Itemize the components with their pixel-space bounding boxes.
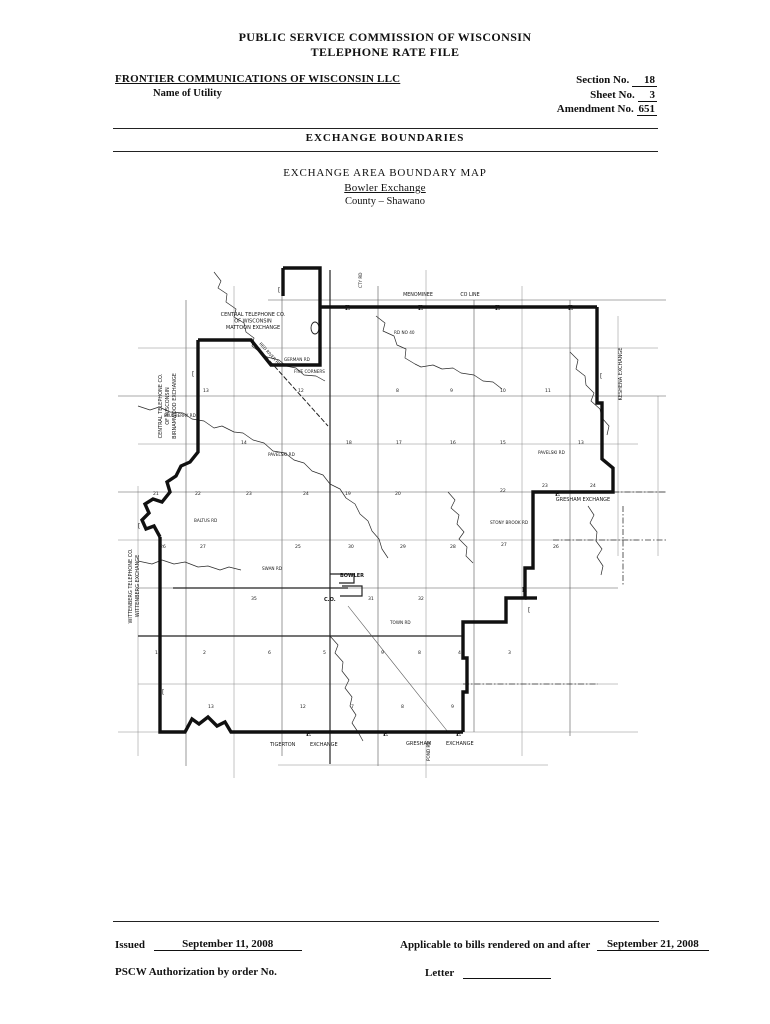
section-no-row: Section No. 18 — [557, 73, 657, 88]
section-number: 23 — [542, 483, 548, 489]
amendment-no-row: Amendment No. 651 — [557, 102, 657, 117]
bowler-town-label: BOWLER — [340, 573, 364, 579]
divider-top — [113, 128, 658, 129]
boundary-marker-e: E — [383, 729, 388, 738]
section-number: 16 — [450, 440, 456, 446]
road-label: FIVE CORNERS — [294, 369, 325, 374]
section-number: 20 — [395, 491, 401, 497]
section-number: 17 — [396, 440, 402, 446]
sheet-value: 3 — [638, 89, 658, 102]
document-page: PUBLIC SERVICE COMMISSION OF WISCONSIN T… — [0, 0, 770, 1024]
section-number: 3 — [508, 650, 511, 656]
section-number: 9 — [450, 388, 453, 394]
section-number: 24 — [303, 491, 309, 497]
section-number: 11 — [545, 388, 551, 394]
section-number: 31 — [368, 596, 374, 602]
applicable-row: Applicable to bills rendered on and afte… — [400, 938, 709, 951]
letter-label: Letter — [425, 967, 454, 979]
section-number: 15 — [500, 440, 506, 446]
section-number: 21 — [153, 491, 159, 497]
section-number: 9 — [381, 650, 384, 656]
section-number: 14 — [241, 440, 247, 446]
section-label: Section No. — [576, 74, 629, 86]
issued-date: September 11, 2008 — [154, 938, 302, 951]
section-value: 18 — [632, 74, 657, 87]
gresham-exchange-bottom-label: EXCHANGE — [446, 741, 474, 747]
keshena-exchange-label: KESHENA EXCHANGE — [618, 348, 624, 401]
pond — [311, 322, 319, 334]
authorization-row: PSCW Authorization by order No. — [115, 966, 277, 978]
section-number: 2 — [203, 650, 206, 656]
boundary-marker-e: E — [418, 303, 423, 312]
boundary-bracket: [ — [138, 523, 140, 530]
section-grid — [118, 270, 666, 778]
amendment-value: 651 — [637, 103, 658, 116]
section-number: 10 — [500, 388, 506, 394]
divider-bottom — [113, 151, 658, 152]
section-number: 23 — [246, 491, 252, 497]
boundary-marker-e: E — [306, 729, 311, 738]
footer-rule — [113, 921, 659, 922]
boundary-bracket: [ — [600, 373, 602, 380]
road-label: SWAN RD — [262, 566, 282, 571]
road-label: POND RD — [426, 741, 431, 761]
road-label: PAVELSKI RD — [268, 452, 295, 457]
section-number: 26 — [160, 544, 166, 550]
section-number: 13 — [203, 388, 209, 394]
section-number: 1 — [155, 650, 158, 656]
boundary-marker-e: E — [568, 303, 573, 312]
section-number: 26 — [553, 544, 559, 550]
mattoon-exchange-label: OF WISCONSIN — [234, 319, 272, 325]
birnamwood-exchange-label: OF WISCONSIN — [165, 387, 171, 425]
central-office-label: C.O. — [324, 597, 336, 603]
letter-row: Letter — [425, 966, 551, 979]
tigerton-exchange-label: TIGERTON — [269, 742, 296, 748]
road-label: PAVELSKI RD — [538, 450, 565, 455]
applicable-date: September 21, 2008 — [597, 938, 709, 951]
wittenberg-exchange-label: WITTENBERG TELEPHONE CO. — [128, 548, 134, 623]
road-label: TOWN RD — [389, 620, 411, 625]
map-title: EXCHANGE AREA BOUNDARY MAP — [0, 167, 770, 179]
issued-row: Issued September 11, 2008 — [115, 938, 302, 951]
main-roads — [138, 270, 463, 764]
county-line-label: MENOMINEE — [403, 292, 433, 298]
boundary-marker-e: E — [456, 729, 461, 738]
boundary-marker-e: E — [495, 303, 500, 312]
mattoon-exchange-label: MATTOON EXCHANGE — [226, 325, 280, 331]
road-label: STONY BROOK RD — [490, 520, 528, 525]
section-number: 6 — [268, 650, 271, 656]
mattoon-exchange-label: CENTRAL TELEPHONE CO. — [221, 312, 286, 318]
section-number: 18 — [346, 440, 352, 446]
boundary-marker-e: E — [555, 489, 560, 498]
boundary-bracket: [ — [528, 607, 530, 614]
section-number: 13 — [578, 440, 584, 446]
boundary-bracket: [ — [278, 287, 280, 294]
road-label: GERMAN RD — [284, 357, 310, 362]
county-line-label: CO LINE — [460, 292, 479, 298]
boundary-bracket: [ — [192, 371, 194, 378]
section-number: 4 — [458, 650, 461, 656]
section-number: 8 — [396, 388, 399, 394]
section-heading: EXCHANGE BOUNDARIES — [0, 132, 770, 144]
rate-file-title: TELEPHONE RATE FILE — [0, 45, 770, 60]
section-number: 25 — [295, 544, 301, 550]
sheet-label: Sheet No. — [590, 89, 635, 101]
sheet-no-row: Sheet No. 3 — [557, 88, 657, 103]
road-label: RD NO 40 — [394, 330, 415, 335]
section-number: 22 — [195, 491, 201, 497]
gresham-exchange-label: GRESHAM EXCHANGE — [556, 497, 610, 503]
section-number: 28 — [450, 544, 456, 550]
amendment-label: Amendment No. — [557, 103, 634, 115]
section-number: 8 — [401, 704, 404, 710]
applicable-label: Applicable to bills rendered on and afte… — [400, 939, 590, 951]
boundary-marker-e: E — [345, 303, 350, 312]
section-number: 9 — [451, 704, 454, 710]
exchange-boundary-map: CENTRAL TELEPHONE CO.OF WISCONSINMATTOON… — [118, 256, 668, 778]
section-number: 22 — [500, 488, 506, 494]
letter-blank — [463, 966, 551, 979]
section-number: 8 — [418, 650, 421, 656]
authorization-label: PSCW Authorization by order No. — [115, 966, 277, 978]
section-number: 32 — [418, 596, 424, 602]
sheet-info-block: Section No. 18 Sheet No. 3 Amendment No.… — [557, 73, 657, 117]
utility-label: Name of Utility — [153, 88, 222, 99]
road-label: BALTUS RD — [194, 518, 217, 523]
section-number: 27 — [200, 544, 206, 550]
tigerton-exchange-label: EXCHANGE — [310, 742, 338, 748]
streams — [138, 272, 609, 741]
section-number: 7 — [351, 704, 354, 710]
section-number: 24 — [590, 483, 596, 489]
birnamwood-exchange-label: CENTRAL TELEPHONE CO. — [158, 373, 164, 438]
road-label: CTY RD — [358, 272, 363, 288]
section-number: 12 — [298, 388, 304, 394]
exchange-boundary — [142, 268, 613, 732]
section-number: 12 — [300, 704, 306, 710]
map-county: County – Shawano — [0, 196, 770, 207]
map-subtitle: Bowler Exchange — [0, 182, 770, 194]
section-number: 13 — [208, 704, 214, 710]
section-number: 19 — [345, 491, 351, 497]
birnamwood-exchange-label: BIRNAMWOOD EXCHANGE — [172, 373, 178, 439]
section-number: 30 — [348, 544, 354, 550]
road-label: BLUEBERRY RD — [164, 413, 196, 418]
issued-label: Issued — [115, 939, 145, 951]
wittenberg-exchange-label: WITTENBERG EXCHANGE — [135, 555, 141, 618]
section-number: 35 — [251, 596, 257, 602]
utility-name: FRONTIER COMMUNICATIONS OF WISCONSIN LLC — [115, 73, 400, 85]
boundary-bracket: [ — [162, 689, 164, 696]
commission-title: PUBLIC SERVICE COMMISSION OF WISCONSIN — [0, 30, 770, 45]
section-number: 29 — [400, 544, 406, 550]
boundary-marker-e: E — [522, 585, 527, 594]
section-number: 27 — [501, 542, 507, 548]
section-number: 5 — [323, 650, 326, 656]
